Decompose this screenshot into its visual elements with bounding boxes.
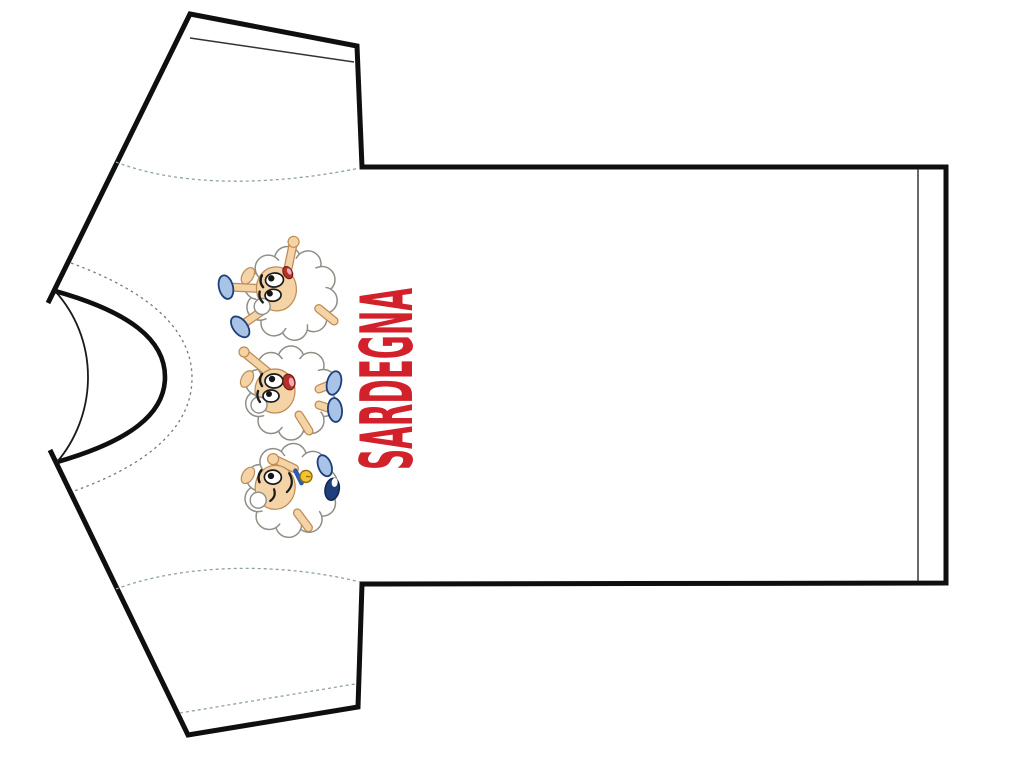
neckline-back xyxy=(55,291,88,462)
sheep-winking-bell-icon xyxy=(235,440,344,541)
sheep-laughing-icon xyxy=(238,346,344,440)
tshirt-mockup: SARDEGNA xyxy=(0,0,1024,768)
print-text: SARDEGNA xyxy=(345,288,429,470)
sheep-hand xyxy=(239,347,249,357)
print-artwork: SARDEGNA xyxy=(213,232,429,540)
sleeve-bottom-cuff-stitch xyxy=(180,684,355,713)
shirt-silhouette xyxy=(48,14,946,735)
neckline-front xyxy=(55,291,165,462)
sheep-fist xyxy=(288,236,300,248)
armhole-seam-bottom xyxy=(116,568,360,589)
sheep-cheering-icon xyxy=(213,232,341,347)
collar-stitching xyxy=(71,263,192,491)
tshirt-outline xyxy=(48,14,946,735)
tshirt-product-image: SARDEGNA xyxy=(0,0,1024,768)
sheep-fist xyxy=(267,453,279,465)
armhole-seam-top xyxy=(116,162,360,181)
